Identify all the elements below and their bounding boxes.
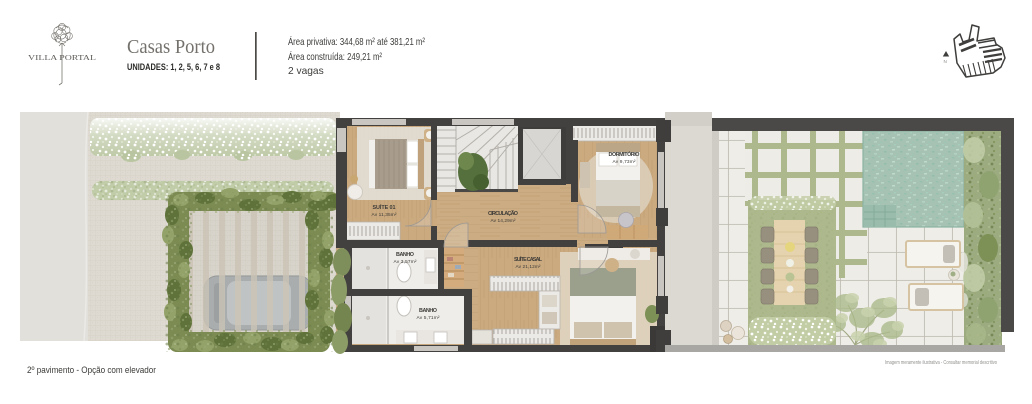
svg-text:Área construída: 249,21 m²: Área construída: 249,21 m² [288,50,382,63]
svg-text:Av 21,12m²: Av 21,12m² [516,264,541,270]
svg-text:CIRCULAÇÃO: CIRCULAÇÃO [488,210,518,217]
svg-text:Área privativa: 344,68 m² até: Área privativa: 344,68 m² até 381,21 m² [288,35,425,48]
svg-text:Av 14,29m²: Av 14,29m² [491,218,516,224]
svg-text:BANHO: BANHO [419,308,437,314]
svg-text:Av 11,35m²: Av 11,35m² [372,212,397,218]
svg-text:BANHO: BANHO [396,252,414,258]
svg-text:SUÍTE 01: SUÍTE 01 [373,203,396,211]
svg-text:2º pavimento - Opção com eleva: 2º pavimento - Opção com elevador [27,365,156,375]
svg-text:N: N [944,59,947,64]
svg-text:Av 5,71m²: Av 5,71m² [417,315,440,321]
svg-text:Av 3,57m²: Av 3,57m² [394,259,417,265]
svg-text:SUÍTE CASAL: SUÍTE CASAL [514,255,543,263]
svg-text:Casas Porto: Casas Porto [127,36,215,58]
svg-text:Imagem meramente ilustrativa -: Imagem meramente ilustrativa - Consultar… [885,360,997,366]
svg-text:DORMITÓRIO: DORMITÓRIO [609,150,640,158]
svg-text:2 vagas: 2 vagas [288,66,324,77]
svg-text:Av 9,73m²: Av 9,73m² [613,159,636,165]
svg-text:UNIDADES: 1, 2, 5, 6, 7 e 8: UNIDADES: 1, 2, 5, 6, 7 e 8 [127,62,220,72]
svg-text:VILLA PORTAL: VILLA PORTAL [28,53,96,62]
